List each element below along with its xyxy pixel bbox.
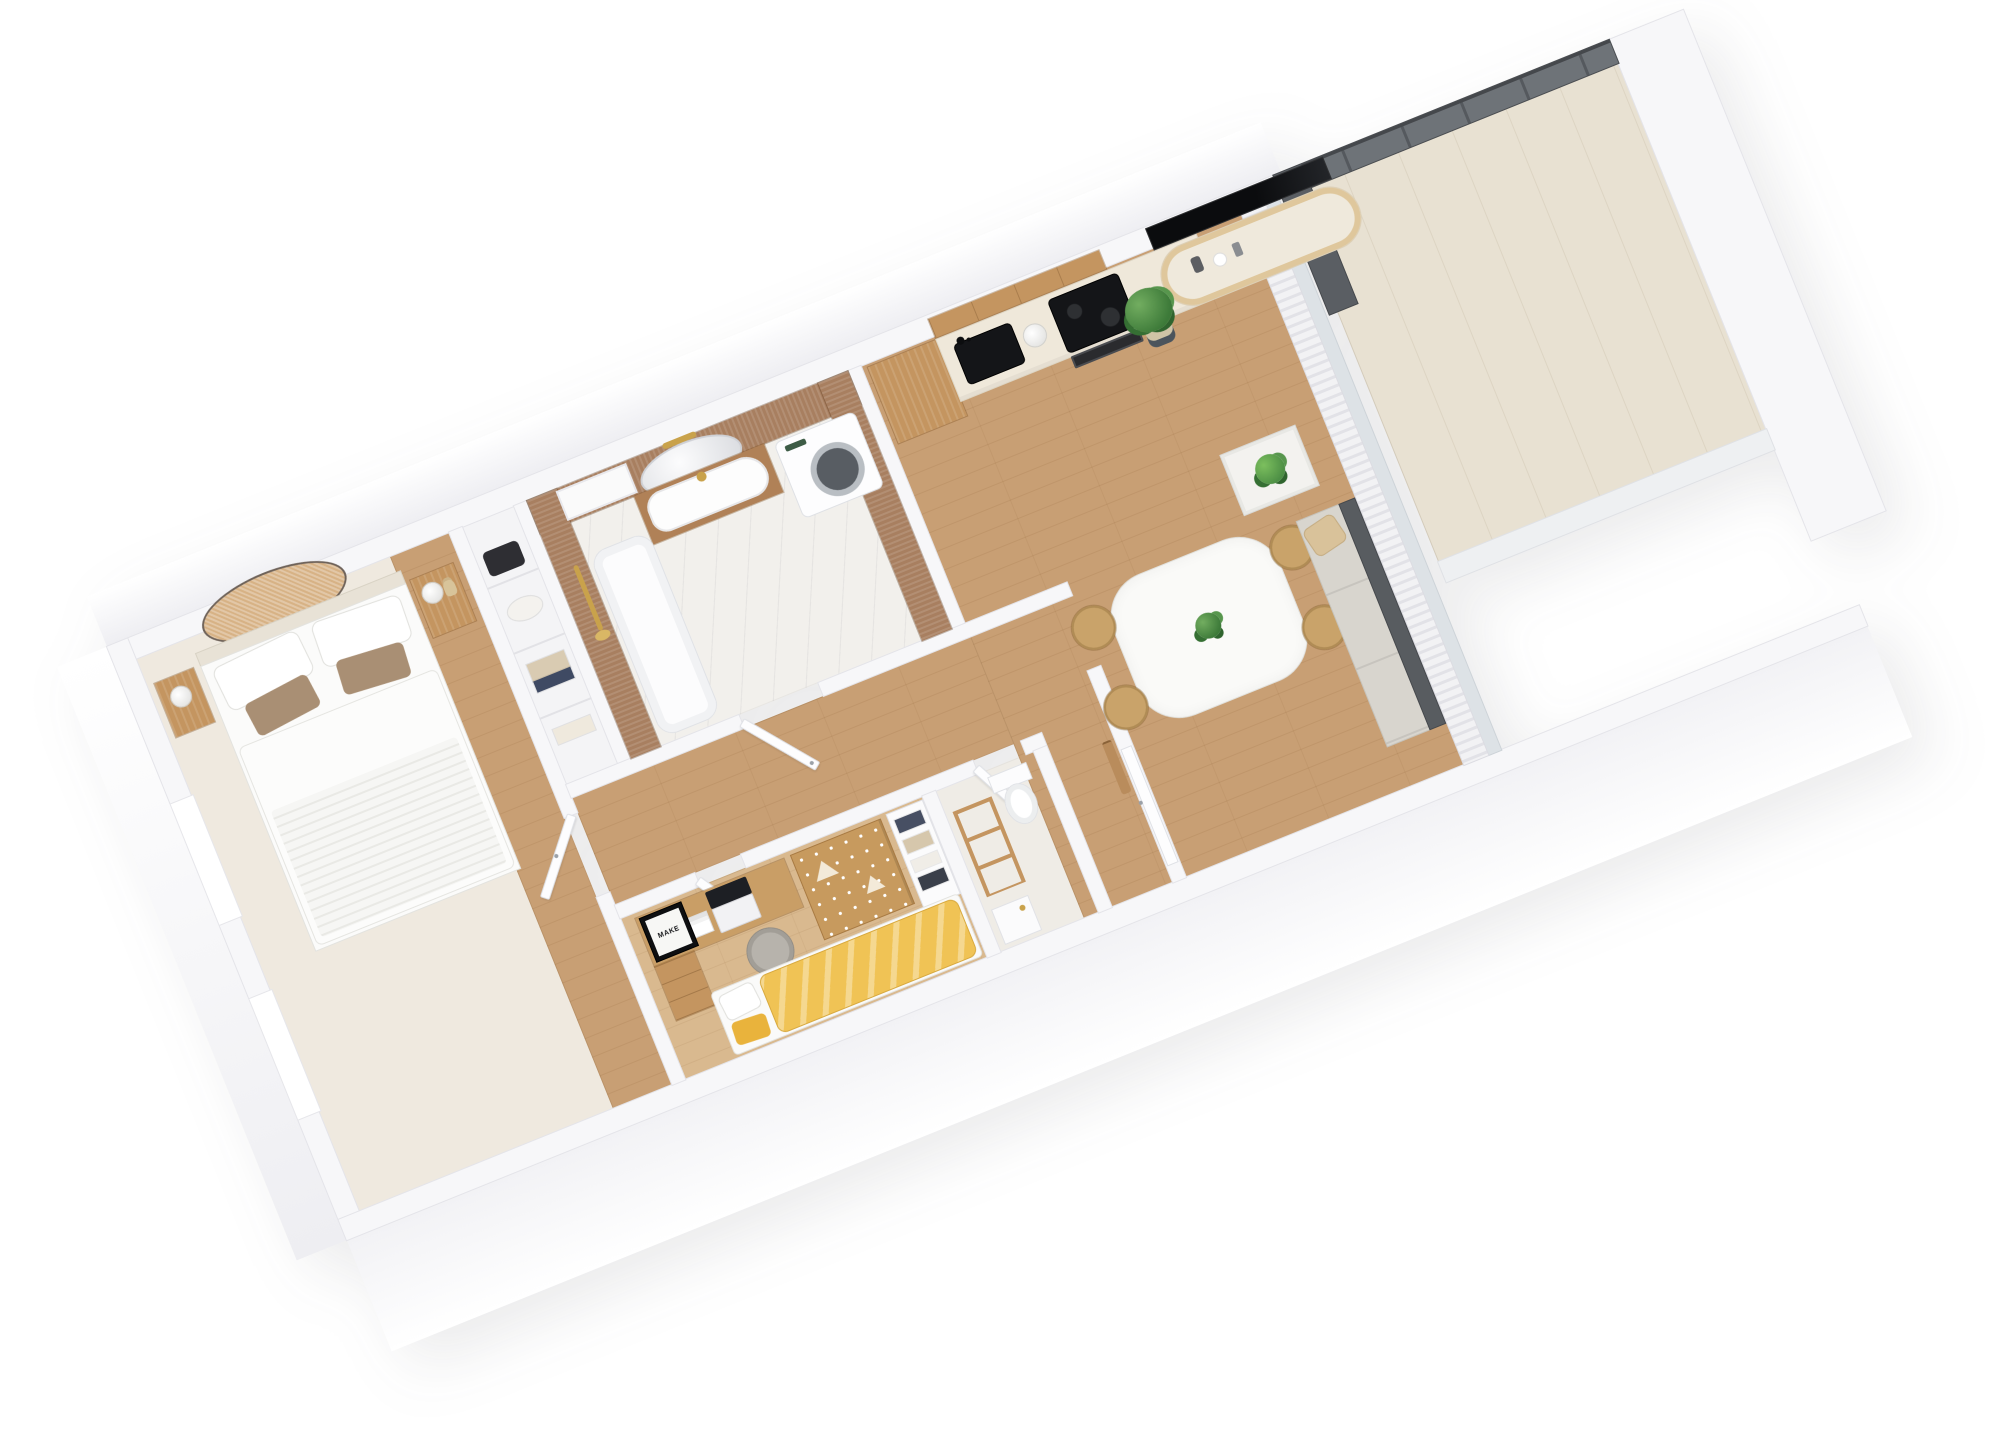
clothes-stack-beige	[903, 830, 934, 853]
folded-clothes-white	[553, 715, 596, 745]
apartment-3d-floor-plan: MAKE	[107, 10, 1923, 1240]
black-bag	[481, 539, 526, 577]
washer-display	[784, 438, 807, 452]
white-hat	[504, 591, 546, 625]
washer-door	[803, 434, 873, 504]
poster-text: MAKE	[645, 908, 693, 957]
decor-vase-dark	[1190, 255, 1205, 274]
wardrobe-triangle-2	[861, 872, 886, 894]
decor-ball-white	[1212, 252, 1228, 268]
wardrobe-triangle-1	[810, 856, 839, 882]
decor-vase-gray	[1231, 241, 1244, 257]
clothes-stack-dark	[918, 867, 949, 890]
clothes-stack-navy	[894, 810, 925, 833]
